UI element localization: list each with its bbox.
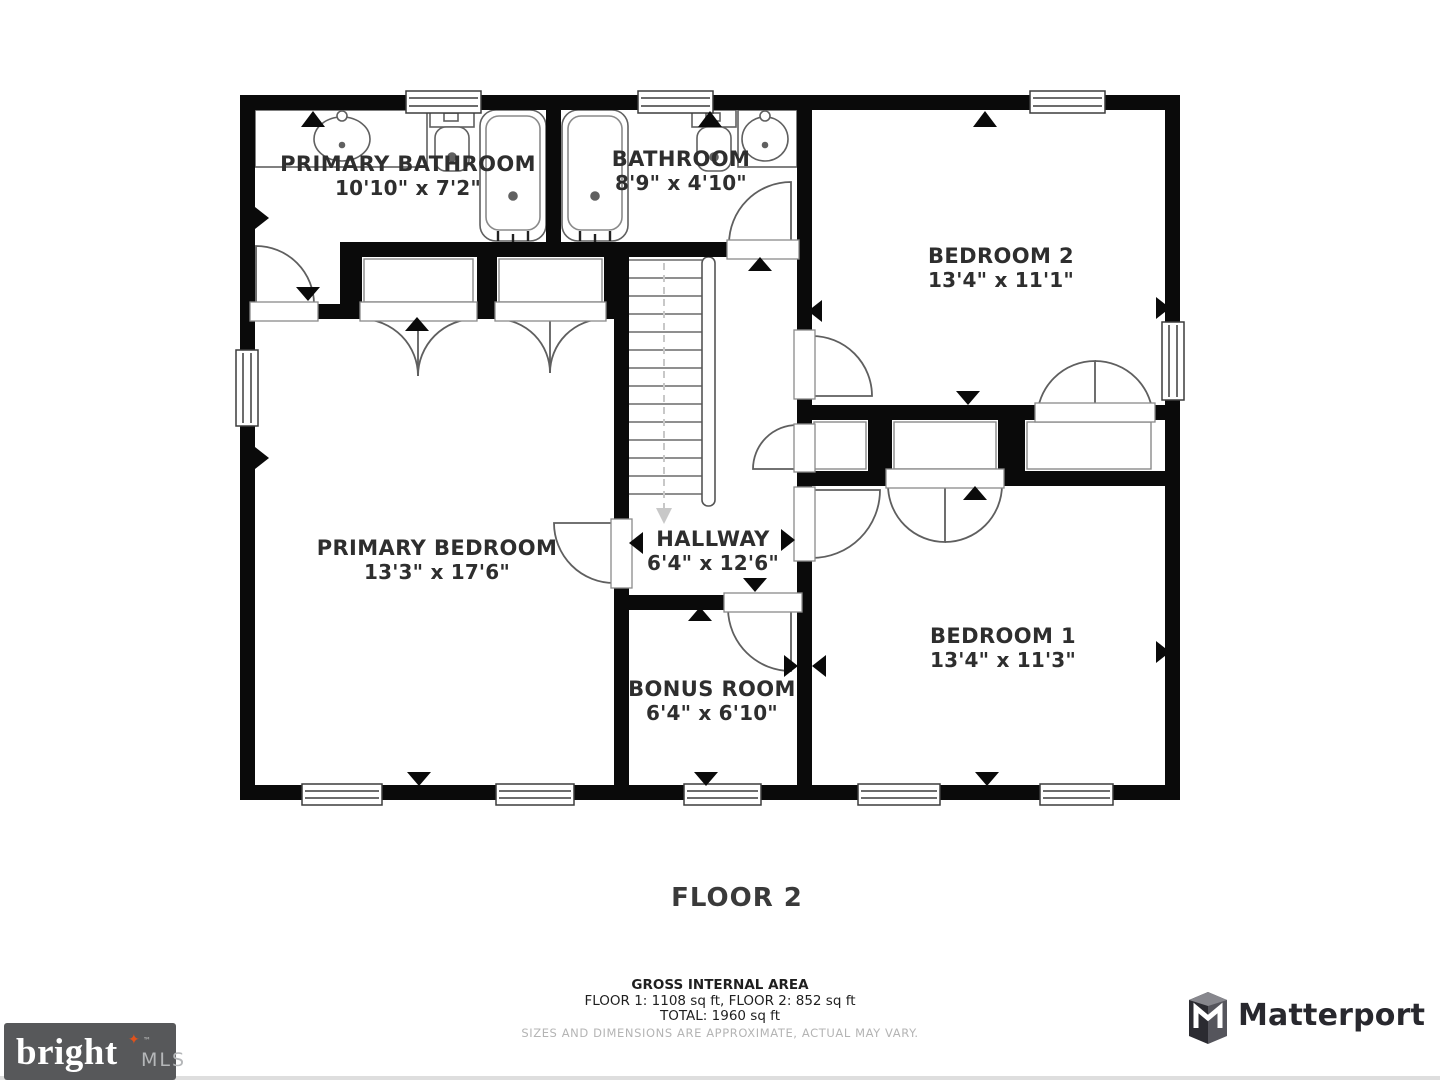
window-icon — [1040, 784, 1113, 805]
room-label-primary-bathroom: PRIMARY BATHROOM 10'10" x 7'2" — [280, 152, 536, 200]
matterport-logo: Matterport — [1186, 990, 1426, 1046]
door-arc — [554, 523, 614, 583]
closet-door-arc — [418, 319, 475, 376]
area-summary-line2: TOTAL: 1960 sq ft — [521, 1009, 918, 1025]
marker-triangle-icon — [407, 772, 431, 786]
bottom-edge-strip — [0, 1076, 1440, 1080]
matterport-m-icon — [1186, 992, 1234, 1044]
window-icon — [302, 784, 382, 805]
room-dims: 6'4" x 12'6" — [647, 551, 779, 575]
door-arc — [812, 490, 880, 558]
window-icon — [858, 784, 940, 805]
closet-door-arc — [550, 319, 604, 373]
door-arc — [728, 609, 791, 671]
window-icon — [1162, 322, 1184, 400]
room-name: PRIMARY BATHROOM — [280, 152, 536, 176]
door-arc — [753, 425, 797, 469]
marker-triangle-icon — [781, 529, 795, 551]
floor-plan-page: PRIMARY BATHROOM 10'10" x 7'2" BATHROOM … — [0, 0, 1440, 1080]
window-icon — [236, 350, 258, 426]
bright-mls-logo: bright ✦ ™ MLS — [4, 1023, 176, 1080]
room-label-bedroom-1: BEDROOM 1 13'4" x 11'3" — [930, 624, 1076, 672]
room-label-primary-bedroom: PRIMARY BEDROOM 13'3" x 17'6" — [317, 536, 558, 584]
room-label-bathroom: BATHROOM 8'9" x 4'10" — [612, 147, 751, 195]
window-icon — [496, 784, 574, 805]
door-arc — [812, 336, 872, 396]
marker-triangle-icon — [975, 772, 999, 786]
area-summary-title: GROSS INTERNAL AREA — [521, 978, 918, 994]
room-name: HALLWAY — [647, 527, 779, 551]
room-name: BEDROOM 1 — [930, 624, 1076, 648]
area-summary-disclaimer: SIZES AND DIMENSIONS ARE APPROXIMATE, AC… — [521, 1026, 918, 1042]
window-icon — [1030, 91, 1105, 113]
marker-triangle-icon — [743, 578, 767, 592]
room-label-bonus-room: BONUS ROOM 6'4" x 6'10" — [628, 677, 796, 725]
bright-mls-wordmark: bright — [16, 1031, 118, 1074]
room-dims: 13'4" x 11'1" — [928, 268, 1074, 292]
room-dims: 8'9" x 4'10" — [612, 171, 751, 195]
bright-mls-tm: ™ — [143, 1036, 151, 1045]
closet-door-arc — [497, 319, 550, 373]
marker-triangle-icon — [296, 287, 320, 301]
room-name: BONUS ROOM — [628, 677, 796, 701]
marker-triangle-icon — [255, 207, 269, 229]
marker-triangle-icon — [956, 391, 980, 405]
room-dims: 13'4" x 11'3" — [930, 648, 1076, 672]
bright-mls-star-icon: ✦ — [128, 1032, 140, 1048]
bright-mls-suffix: MLS — [141, 1049, 186, 1071]
matterport-wordmark: Matterport — [1238, 998, 1425, 1033]
room-name: BATHROOM — [612, 147, 751, 171]
stairs-down-arrow-icon — [656, 508, 672, 524]
room-name: PRIMARY BEDROOM — [317, 536, 558, 560]
marker-triangle-icon — [973, 111, 997, 127]
marker-triangle-icon — [255, 447, 269, 469]
room-dims: 13'3" x 17'6" — [317, 560, 558, 584]
area-summary: GROSS INTERNAL AREA FLOOR 1: 1108 sq ft,… — [521, 978, 918, 1041]
room-dims: 6'4" x 6'10" — [628, 701, 796, 725]
window-icon — [684, 784, 761, 805]
window-icon — [638, 91, 713, 113]
room-dims: 10'10" x 7'2" — [280, 176, 536, 200]
room-label-bedroom-2: BEDROOM 2 13'4" x 11'1" — [928, 244, 1074, 292]
stairs — [629, 257, 715, 524]
room-name: BEDROOM 2 — [928, 244, 1074, 268]
marker-triangle-icon — [812, 655, 826, 677]
room-label-hallway: HALLWAY 6'4" x 12'6" — [647, 527, 779, 575]
window-icon — [406, 91, 481, 113]
area-summary-line1: FLOOR 1: 1108 sq ft, FLOOR 2: 852 sq ft — [521, 994, 918, 1010]
closet-door-arc — [888, 485, 945, 542]
floor-title: FLOOR 2 — [671, 883, 803, 913]
